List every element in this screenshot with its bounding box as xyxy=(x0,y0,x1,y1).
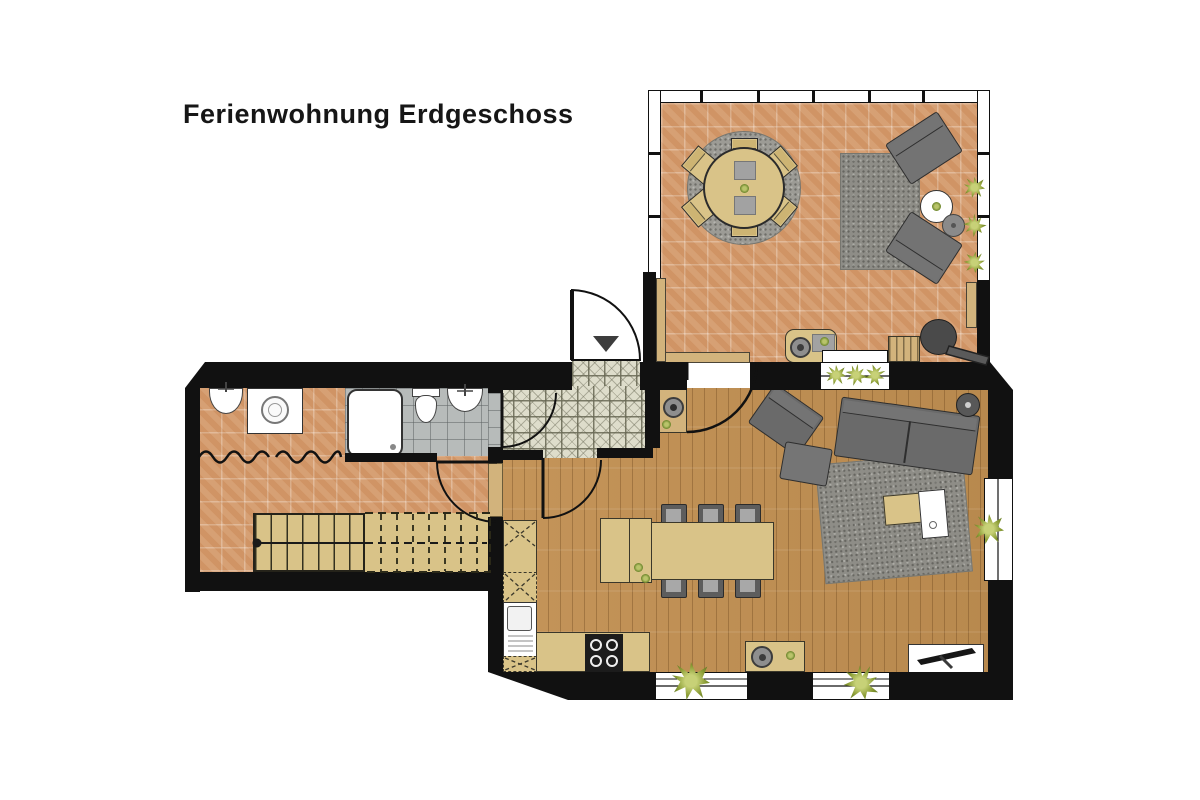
stairhall-doorway-threshold xyxy=(488,463,503,517)
stool-center-dot xyxy=(951,223,956,228)
window-mullion xyxy=(977,215,990,218)
terrace-doormat xyxy=(888,336,920,362)
cooktop xyxy=(585,634,623,672)
wall-right-seg2 xyxy=(988,580,1013,700)
wall-bottom-seg2 xyxy=(748,672,812,700)
bathroom-doorway-floor xyxy=(488,393,502,447)
window-top-sill xyxy=(822,350,888,363)
window-mullion xyxy=(757,90,760,103)
kitchen-base-cabinet xyxy=(503,656,537,672)
serving-trolley xyxy=(600,518,630,583)
kitchen-counter-left xyxy=(503,520,537,574)
terrace-pilaster-left xyxy=(656,278,666,362)
terrace-wall-stub-left xyxy=(643,272,656,362)
window-mullion xyxy=(922,90,925,103)
trolley-plant-dot xyxy=(634,563,643,572)
washing-machine-drum xyxy=(268,403,282,417)
kitchen-sink-basin xyxy=(507,606,532,631)
wall-leftwing-top xyxy=(185,362,488,388)
floor-plan-canvas: Ferienwohnung Erdgeschoss xyxy=(0,0,1200,800)
stairs-solid xyxy=(253,513,365,572)
stool-dot xyxy=(965,402,971,408)
wall-bottom-seg1 xyxy=(488,672,655,700)
wall-top-seg3 xyxy=(750,362,820,390)
wall-left-seg1 xyxy=(488,362,503,393)
window-mullion xyxy=(700,90,703,103)
entrance-marker-icon xyxy=(593,336,619,352)
tv-sideboard xyxy=(908,644,984,673)
cooktop-burner xyxy=(590,639,602,651)
grill-burner-center xyxy=(797,344,804,351)
wall-hall-south-left xyxy=(488,450,543,460)
grill-plant-dot xyxy=(820,337,829,346)
window-mullion xyxy=(648,152,661,155)
wall-hall-south-right xyxy=(597,448,653,458)
sideboard-bowl-center xyxy=(759,654,766,661)
stove-plant-dot xyxy=(662,420,671,429)
terrace-pilaster-right xyxy=(966,282,977,328)
cooktop-burner xyxy=(590,655,602,667)
hallway-tile-floor xyxy=(497,384,647,458)
wall-bathroom-south xyxy=(345,453,437,462)
kitchen-tall-cabinet xyxy=(503,572,537,603)
wall-left-seg3 xyxy=(488,517,503,672)
wall-hall-right xyxy=(645,362,660,448)
hallway-tile-door-patch xyxy=(572,359,640,386)
window-mullion xyxy=(977,152,990,155)
shower-drain xyxy=(390,444,396,450)
front-door-swing xyxy=(572,290,640,360)
window-mullion xyxy=(648,215,661,218)
dining-table xyxy=(650,522,774,580)
sideboard-plant-dot xyxy=(786,651,795,660)
table-tray xyxy=(734,161,756,180)
cooktop-burner xyxy=(606,655,618,667)
trolley-plant-dot xyxy=(641,574,650,583)
plan-title: Ferienwohnung Erdgeschoss xyxy=(183,99,574,130)
terrace-wall-stub-right xyxy=(977,280,990,362)
table-tray xyxy=(734,196,756,215)
window-mullion xyxy=(868,90,871,103)
serving-trolley-shelf xyxy=(629,518,652,583)
coffee-table-dot xyxy=(929,521,937,529)
table-plant-dot xyxy=(740,184,749,193)
white-coffee-table xyxy=(918,489,949,539)
wood-stove-center xyxy=(670,404,677,411)
terrace-glass-wall-left xyxy=(648,90,661,283)
side-table-plant-dot xyxy=(932,202,941,211)
stairs-dashed xyxy=(365,513,490,572)
kettle-grill xyxy=(920,319,957,355)
window-mullion xyxy=(812,90,815,103)
wall-leftwing-bottom xyxy=(185,572,503,591)
ottoman xyxy=(779,441,833,487)
cooktop-burner xyxy=(606,639,618,651)
wall-leftwing-left xyxy=(185,362,200,592)
